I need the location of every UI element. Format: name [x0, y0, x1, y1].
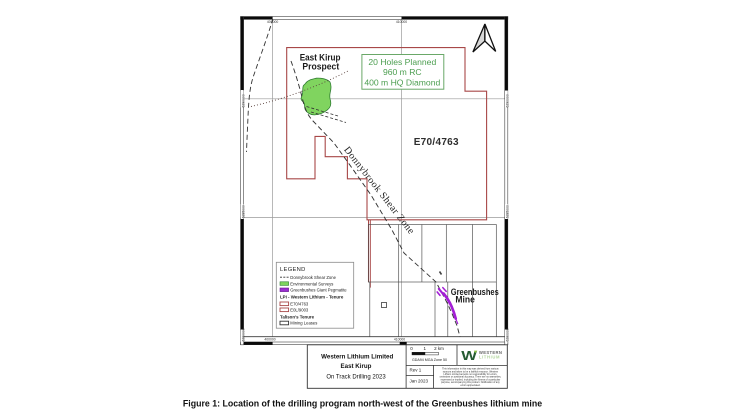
svg-text:East Kirup: East Kirup — [341, 363, 372, 370]
svg-text:LITHIUM: LITHIUM — [479, 354, 500, 359]
svg-text:2 km: 2 km — [434, 346, 444, 351]
svg-text:GDA94 MGA Zone 50: GDA94 MGA Zone 50 — [412, 358, 447, 362]
svg-text:E70/4763: E70/4763 — [414, 137, 459, 148]
svg-text:400000: 400000 — [264, 338, 275, 342]
svg-text:6290000: 6290000 — [241, 94, 245, 107]
svg-text:Rev 1: Rev 1 — [410, 368, 422, 373]
svg-text:6285000: 6285000 — [505, 205, 509, 218]
svg-text:E70/4763: E70/4763 — [290, 302, 309, 307]
svg-text:960 m RC: 960 m RC — [383, 67, 422, 77]
svg-text:On Track Drilling 2023: On Track Drilling 2023 — [326, 374, 386, 380]
svg-text:Mine: Mine — [455, 294, 475, 304]
svg-text:6285000: 6285000 — [241, 205, 245, 218]
svg-text:400 m HQ Diamond: 400 m HQ Diamond — [364, 77, 440, 87]
svg-text:6280000: 6280000 — [241, 328, 245, 341]
svg-text:E0L/9003: E0L/9003 — [290, 308, 309, 313]
svg-text:Jan 2023: Jan 2023 — [410, 379, 429, 384]
svg-text:20 Holes Planned: 20 Holes Planned — [368, 57, 436, 67]
svg-text:6280000: 6280000 — [505, 328, 509, 341]
svg-text:Figure 1: Location of the dril: Figure 1: Location of the drilling progr… — [183, 399, 542, 409]
svg-text:Environmental Surveys: Environmental Surveys — [290, 281, 333, 286]
svg-text:410000: 410000 — [396, 20, 407, 24]
svg-text:6290000: 6290000 — [505, 94, 509, 107]
svg-text:LEGEND: LEGEND — [280, 267, 306, 273]
svg-text:Talison's Tenure: Talison's Tenure — [280, 314, 315, 319]
svg-text:errors appreciated.: errors appreciated. — [460, 384, 480, 387]
svg-text:Prospect: Prospect — [302, 61, 339, 71]
svg-text:Greenbushes Giant Pegmatite: Greenbushes Giant Pegmatite — [290, 288, 347, 293]
svg-text:LPI - Western Lithium - Tenure: LPI - Western Lithium - Tenure — [280, 295, 344, 300]
svg-text:Western Lithium Limited: Western Lithium Limited — [321, 354, 393, 361]
svg-text:Donnybrook Shear Zone: Donnybrook Shear Zone — [290, 275, 336, 280]
svg-text:Mining Leases: Mining Leases — [290, 321, 317, 326]
svg-text:410000: 410000 — [394, 338, 405, 342]
svg-text:400000: 400000 — [267, 20, 278, 24]
